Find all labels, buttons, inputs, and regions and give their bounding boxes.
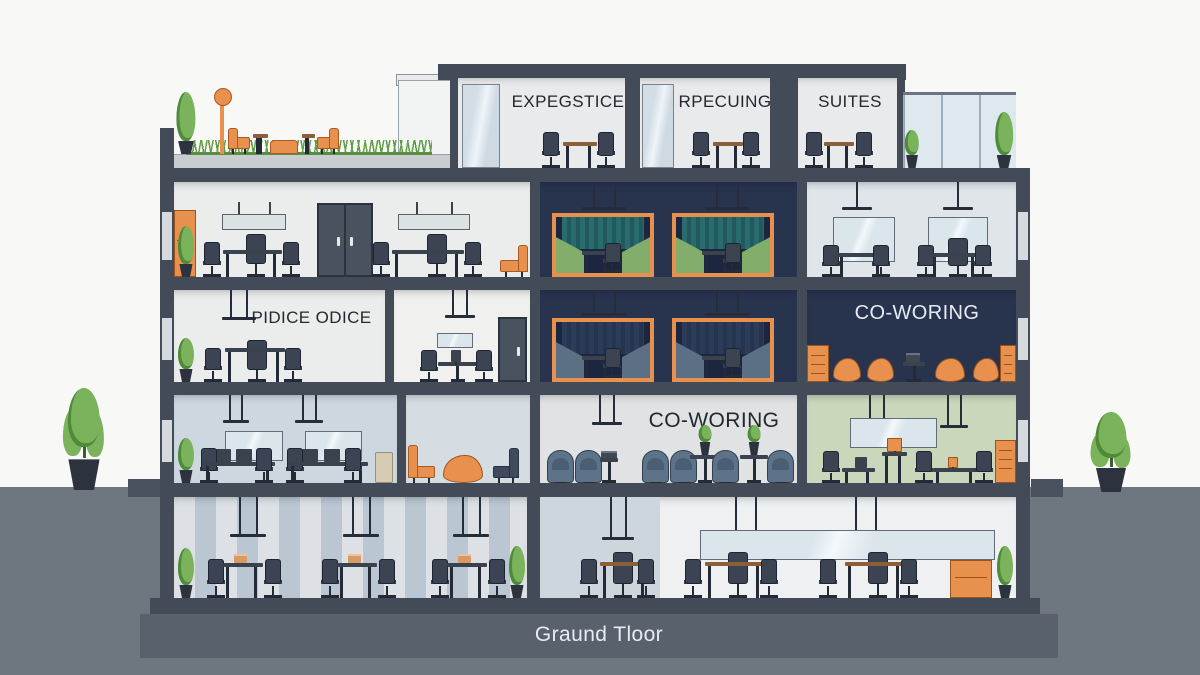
street-tree-left [58,388,110,490]
focus-booth [672,213,774,277]
interior-wall [530,395,540,483]
office-plant [176,340,196,382]
table-plant [697,427,713,455]
office-chair [462,242,484,277]
desk [842,468,875,483]
penthouse-room-1-label: EXPEGSTICE [508,92,628,112]
meeting-table [225,348,285,382]
terrace-side-table [302,134,315,154]
orange-shelf [995,440,1016,483]
pendant-light [582,290,626,316]
office-chair [972,245,994,277]
wall-window [162,318,172,360]
lounge-chair [767,450,794,483]
wall-window [1018,420,1028,462]
floor-plant [176,550,196,598]
office-chair [898,559,920,598]
pendant-light [343,497,379,537]
floor-slab [150,598,1040,614]
floor-slab [160,382,1030,395]
terrace-side-table [253,134,268,154]
bean-bag [443,455,483,483]
terrace-ottoman [270,140,298,154]
level2-lounge [406,395,530,483]
penthouse-wall [770,78,798,168]
table-object [451,350,461,362]
lounge-chair [712,450,739,483]
penthouse-room-3-label: SUITES [795,92,905,112]
focus-booth [552,213,654,277]
ground-open-space [540,497,1016,598]
pendant-light [223,395,249,423]
lounge-chair [547,450,574,483]
pendant-light [295,395,323,423]
wall-window [1018,212,1028,260]
interior-wall [385,290,394,382]
lounge-chair [575,450,602,483]
office-chair [758,559,780,598]
office-chair [913,451,935,483]
work-table [223,563,263,598]
outer-wall-left [160,128,174,612]
interior-wall [530,182,540,277]
standing-desk [882,452,907,483]
floor-plant [995,548,1015,598]
office-chair [253,448,275,483]
cafe-table [438,362,477,382]
wall-window [162,420,172,462]
terrace-chair [317,128,339,154]
laptop [906,353,920,362]
bean-bag [973,358,999,382]
penthouse-room-2-label: RPECUING [675,92,775,112]
stool-table [903,362,925,382]
office-chair [690,132,712,168]
level2-green-office [807,395,1016,483]
high-table [740,455,768,483]
street-tree-right [1086,412,1136,492]
ground-left-hall [174,497,527,598]
door-handle [517,347,520,356]
orange-shelf [807,345,829,382]
meeting-table [563,142,597,168]
railing-mullion [941,95,943,168]
office-chair [817,559,839,598]
pendant-light [230,497,266,537]
office-label: PIDICE ODICE [244,308,379,328]
base-step-right [1031,479,1063,497]
office-chair [282,348,304,382]
work-table [845,562,905,598]
level4-focus-booths-room [540,182,797,277]
ground-floor-label: Graund Tloor [140,623,1058,647]
orange-lounge-chair [408,445,435,483]
roof-plant [993,114,1015,168]
door-handle [337,237,340,246]
side-table [600,458,618,483]
glass-door [642,84,674,168]
hanging-panel [398,202,470,230]
single-door [498,317,527,382]
pendant-light [453,497,489,537]
monitor [236,449,252,462]
pendant-light [582,182,626,210]
orange-shelf [1000,345,1016,382]
pendant-light [445,290,475,318]
booth-chair [602,243,622,273]
roof-plant [903,132,921,168]
roof-glass-railing [903,92,1016,168]
level4-meeting-right [807,182,1016,277]
office-chair [201,242,223,277]
pendant-light [705,182,749,210]
level2-coworking: CO-WORING [540,395,797,483]
booth-chair [602,348,622,378]
building-cross-section: Graund Tloor EXPEGSTICE RPECUING SUITES [0,0,1200,675]
level4-office-left [174,182,530,277]
meeting-table [392,250,464,277]
level3-coworking-lounge: CO-WORING [807,290,1016,382]
floor-slab [160,483,1030,497]
coworking-label: CO-WORING [837,302,997,325]
wall-window [162,212,172,260]
orange-monitor [887,438,902,452]
interior-wall [397,395,406,483]
office-chair [740,132,762,168]
railing-mullion [979,95,981,168]
office-chair [262,559,284,598]
work-table [705,562,765,598]
office-chair [803,132,825,168]
hanging-panel [222,202,286,230]
office-plant [176,440,196,483]
penthouse-wall [450,78,458,168]
desk [933,468,978,483]
wall-mirror [437,333,473,348]
interior-wall [530,290,540,382]
bean-bag [935,358,965,382]
orange-armchair [500,245,528,277]
office-chair [635,559,657,598]
focus-booth [552,318,654,382]
orange-monitor [948,457,958,468]
interior-wall [527,497,540,598]
office-chair [853,132,875,168]
floor-slab [160,168,1030,182]
office-chair [486,559,508,598]
terrace-chair [228,128,250,154]
laptop [458,554,471,563]
monitor [324,449,340,462]
coworking-label: CO-WORING [644,409,784,433]
interior-wall [797,182,807,277]
pendant-light [940,395,968,428]
booth-chair [722,243,742,273]
laptop [234,554,247,563]
interior-wall [797,395,807,483]
dark-armchair [493,448,519,483]
orange-cabinet [950,560,992,598]
interior-wall [797,290,807,382]
floor-slab [160,277,1030,290]
rooftop-terrace [174,78,450,168]
bean-bag [867,358,894,382]
office-chair [280,242,302,277]
terrace-deck [174,154,450,168]
meeting-table [223,250,282,277]
office-chair [578,559,600,598]
laptop [348,554,361,563]
pendant-light [592,395,622,425]
floor-plant [507,548,527,598]
office-chair [682,559,704,598]
meeting-table [713,142,743,168]
office-chair [370,242,392,277]
penthouse-wall [625,78,640,168]
office-plant [176,228,196,277]
bean-bag [833,358,861,382]
level2-workstations [174,395,397,483]
locker [375,452,393,483]
pendant-light [943,182,973,210]
foundation-band: Graund Tloor [140,612,1058,658]
office-chair [820,451,842,483]
table-plant [746,427,762,455]
office-chair [202,348,224,382]
office-chair [473,350,495,382]
office-chair [376,559,398,598]
office-chair [418,350,440,382]
meeting-table [824,142,854,168]
work-table [337,563,377,598]
office-chair [870,245,892,277]
office-chair [342,448,364,483]
terrace-plant [174,94,198,154]
booth-chair [722,348,742,378]
glass-door [462,84,500,168]
level3-office-left: PIDICE ODICE [174,290,385,382]
office-chair [973,451,995,483]
door-handle [350,237,353,246]
base-step-left [128,479,161,497]
level3-small-office [394,290,530,382]
double-door [317,203,373,277]
monitor [855,457,867,468]
office-chair [540,132,562,168]
pendant-light [602,497,634,540]
pendant-light [842,182,872,210]
pendant-light [705,290,749,316]
wall-window [1018,318,1028,360]
work-table [447,563,487,598]
lounge-chair [642,450,669,483]
penthouse: EXPEGSTICE RPECUING SUITES [450,78,905,168]
focus-booth [672,318,774,382]
office-chair [595,132,617,168]
level3-focus-booths-room [540,290,797,382]
